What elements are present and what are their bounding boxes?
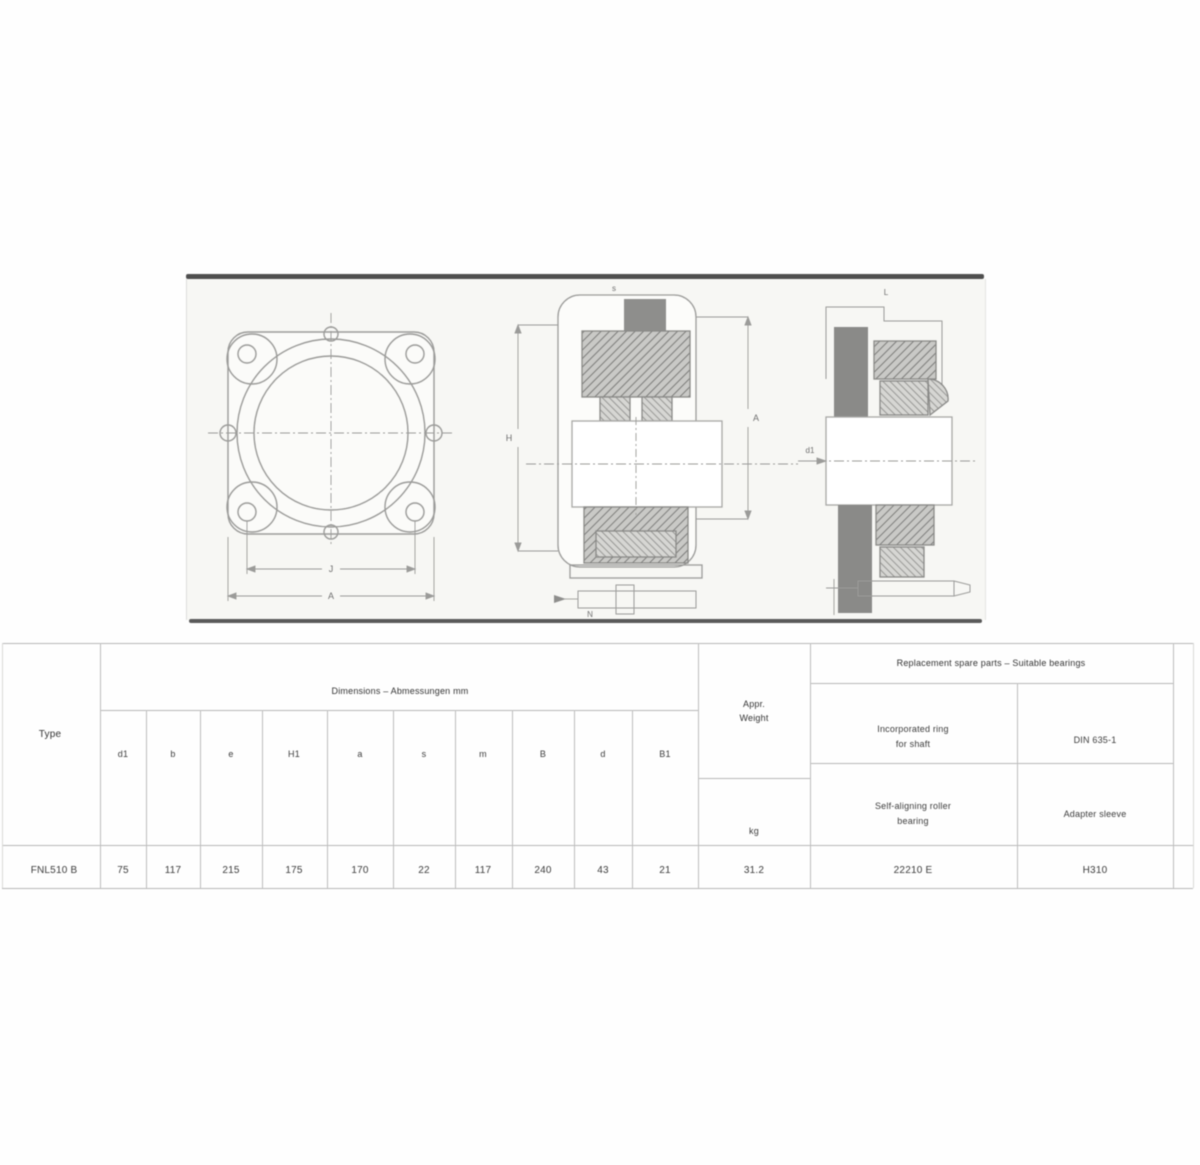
table-rule [574, 710, 575, 888]
dim-column-header: a [357, 748, 362, 760]
band-bottom-rule [189, 619, 982, 623]
table-rule [698, 643, 699, 888]
right-bore-label: d1 [806, 446, 815, 455]
table-rule [810, 683, 1173, 684]
dim-column-header: e [228, 748, 233, 760]
front-total-width-label: A [328, 591, 334, 601]
table-rule [1193, 643, 1194, 888]
dim-column-header: d1 [118, 748, 128, 760]
weight-header-line1: Appr. [743, 698, 765, 710]
side-screw-label: s [612, 284, 616, 293]
table-rule [810, 643, 811, 888]
right-top-label: L [884, 288, 889, 297]
dim-column-header: B1 [659, 748, 670, 760]
spare-row1-right: DIN 635-1 [1074, 734, 1117, 746]
weight-header-line2: Weight [739, 712, 768, 724]
weight-unit: kg [749, 825, 759, 837]
spare-row2-left-line2: bearing [897, 815, 928, 827]
spare-row2-left-line1: Self-aligning roller [875, 800, 951, 812]
dim-column-header: B [540, 748, 546, 760]
table-rule [200, 710, 201, 888]
dim-value: 21 [659, 865, 671, 877]
dim-value: 75 [117, 865, 129, 877]
side-width-label: A [753, 413, 759, 423]
spare-row1-left-line2: for shaft [896, 738, 930, 750]
section-view-drawing: H A s N [506, 284, 798, 619]
table-rule [632, 710, 633, 888]
table-rule [2, 643, 1193, 644]
table-rule [2, 888, 1193, 889]
dim-value: 22 [418, 865, 430, 877]
front-bolt-span-label: J [329, 564, 334, 574]
table-rule [2, 643, 3, 888]
spare-parts-group-header: Replacement spare parts – Suitable beari… [897, 657, 1086, 669]
dim-column-header: H1 [288, 748, 300, 760]
table-rule [810, 763, 1173, 764]
side-bottom-label: N [587, 610, 593, 619]
spare-row2-right: Adapter sleeve [1064, 808, 1127, 820]
dim-value: 240 [534, 865, 551, 877]
dim-value: 175 [285, 865, 302, 877]
dimensions-group-header: Dimensions – Abmessungen mm [332, 685, 469, 697]
weight-value: 31.2 [744, 865, 764, 877]
dim-column-header: d [600, 748, 605, 760]
table-rule [698, 778, 810, 779]
bearing-designation: 22210 E [894, 865, 933, 877]
table-rule [393, 710, 394, 888]
table-rule [327, 710, 328, 888]
table-rule [146, 710, 147, 888]
sleeve-designation: H310 [1083, 865, 1108, 877]
table-rule [100, 643, 101, 888]
table-rule [2, 845, 1193, 846]
dim-column-header: s [422, 748, 427, 760]
dim-value: 117 [165, 865, 182, 877]
technical-drawings: J A [186, 279, 984, 619]
dim-value: 43 [597, 865, 609, 877]
dim-value: 215 [222, 865, 239, 877]
table-rule [262, 710, 263, 888]
table-rule [1017, 683, 1018, 888]
bearing-section-drawing: L d1 [798, 288, 978, 615]
dim-column-header: b [170, 748, 175, 760]
front-view-drawing: J A [208, 313, 454, 601]
spare-row1-left-line1: Incorporated ring [877, 723, 948, 735]
dim-value: 117 [475, 865, 492, 877]
side-height-label: H [506, 433, 513, 443]
dim-value: 170 [351, 865, 368, 877]
type-column-header: Type [39, 729, 61, 741]
dim-column-header: m [479, 748, 487, 760]
table-rule [455, 710, 456, 888]
table-rule [512, 710, 513, 888]
table-rule [100, 710, 698, 711]
table-rule [1173, 643, 1174, 888]
type-value: FNL510 B [31, 865, 78, 877]
